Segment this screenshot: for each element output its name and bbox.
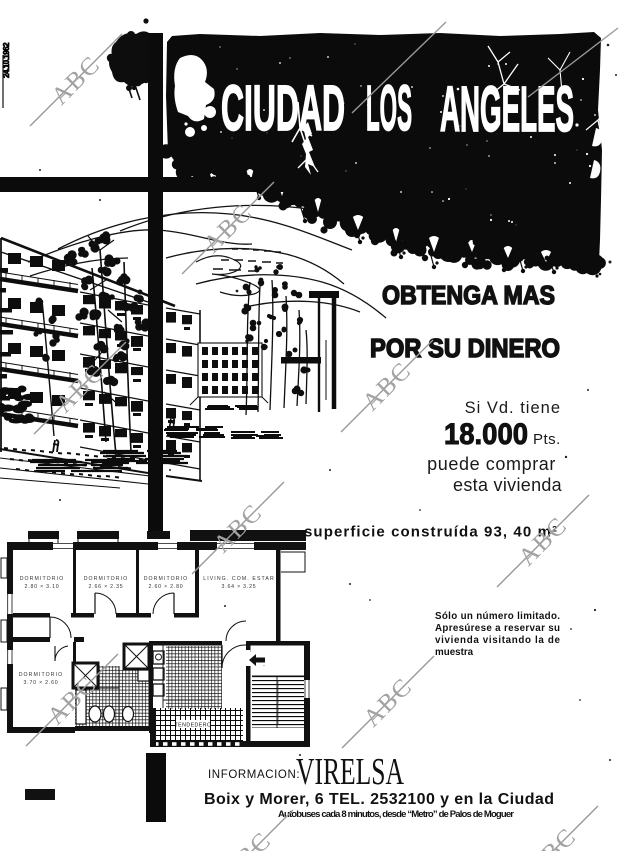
svg-text:Boix y Morer, 6 TEL. 2532100 y: Boix y Morer, 6 TEL. 2532100 y en la Ciu… bbox=[204, 791, 554, 808]
svg-text:vivienda visitando la de: vivienda visitando la de bbox=[435, 635, 561, 646]
svg-text:DORMITORIO: DORMITORIO bbox=[20, 576, 65, 582]
svg-text:2.60 × 2.80: 2.60 × 2.80 bbox=[149, 584, 184, 590]
svg-text:LIVING. COM. ESTAR: LIVING. COM. ESTAR bbox=[203, 576, 275, 582]
svg-text:OBTENGA MAS: OBTENGA MAS bbox=[382, 280, 555, 310]
svg-text:3.70 × 2.60: 3.70 × 2.60 bbox=[24, 680, 59, 686]
svg-text:Sólo un número limitado.: Sólo un número limitado. bbox=[435, 611, 560, 622]
svg-text:Pts.: Pts. bbox=[533, 431, 561, 448]
svg-text:INFORMACION:: INFORMACION: bbox=[208, 769, 300, 781]
svg-text:TENDEDERO: TENDEDERO bbox=[174, 723, 211, 729]
svg-text:CIUDAD: CIUDAD bbox=[221, 72, 345, 144]
svg-text:DORMITORIO: DORMITORIO bbox=[144, 576, 189, 582]
svg-text:Autobuses cada 8 minutos, desd: Autobuses cada 8 minutos, desde “Metro” … bbox=[278, 809, 514, 820]
svg-text:Si Vd. tiene: Si Vd. tiene bbox=[465, 399, 561, 417]
svg-text:ANGELES: ANGELES bbox=[440, 73, 574, 145]
svg-text:muestra: muestra bbox=[435, 647, 474, 658]
svg-text:3.64 × 3.25: 3.64 × 3.25 bbox=[222, 584, 257, 590]
svg-text:esta vivienda: esta vivienda bbox=[453, 475, 563, 495]
svg-text:DORMITORIO: DORMITORIO bbox=[84, 576, 129, 582]
svg-text:2.66 × 2.35: 2.66 × 2.35 bbox=[89, 584, 124, 590]
svg-text:18.000: 18.000 bbox=[444, 418, 528, 451]
svg-text:2.80 × 3.10: 2.80 × 3.10 bbox=[25, 584, 60, 590]
svg-text:VIRELSA: VIRELSA bbox=[296, 751, 404, 793]
svg-text:LOS: LOS bbox=[366, 72, 412, 144]
svg-text:DORMITORIO: DORMITORIO bbox=[19, 672, 64, 678]
svg-text:puede comprar: puede comprar bbox=[427, 454, 556, 474]
svg-text:Apresúrese a reservar su: Apresúrese a reservar su bbox=[435, 623, 560, 634]
svg-text:superficie construída 93, 40 m: superficie construída 93, 40 m² bbox=[304, 524, 557, 541]
